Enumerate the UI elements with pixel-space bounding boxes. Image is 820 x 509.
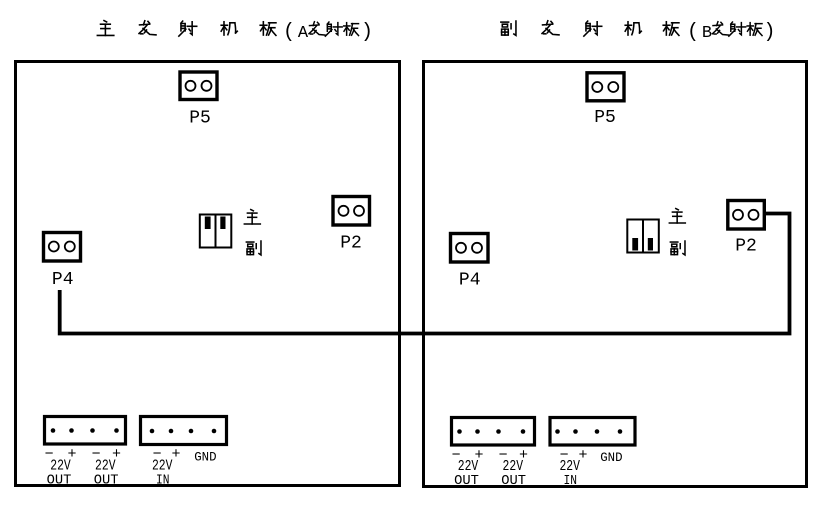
svg-text:OUT: OUT bbox=[94, 473, 119, 489]
svg-text:P2: P2 bbox=[735, 237, 757, 257]
svg-text:): ) bbox=[763, 21, 775, 44]
svg-text:GND: GND bbox=[600, 450, 622, 465]
svg-text:GND: GND bbox=[194, 450, 216, 465]
svg-text:P5: P5 bbox=[189, 109, 211, 129]
svg-text:+: + bbox=[171, 446, 180, 463]
svg-text:P5: P5 bbox=[594, 108, 616, 128]
svg-text:(: ( bbox=[283, 21, 295, 44]
svg-text:OUT: OUT bbox=[501, 473, 526, 489]
svg-text:(: ( bbox=[687, 21, 699, 44]
svg-text:IN: IN bbox=[156, 473, 170, 489]
svg-text:P4: P4 bbox=[459, 271, 481, 291]
svg-text:P4: P4 bbox=[52, 270, 74, 290]
svg-text:OUT: OUT bbox=[454, 473, 479, 489]
svg-text:P2: P2 bbox=[340, 233, 362, 253]
svg-text:OUT: OUT bbox=[47, 473, 72, 489]
svg-text:): ) bbox=[361, 21, 373, 44]
svg-text:A: A bbox=[298, 24, 309, 43]
svg-text:IN: IN bbox=[564, 473, 578, 489]
svg-text:B: B bbox=[702, 24, 712, 43]
